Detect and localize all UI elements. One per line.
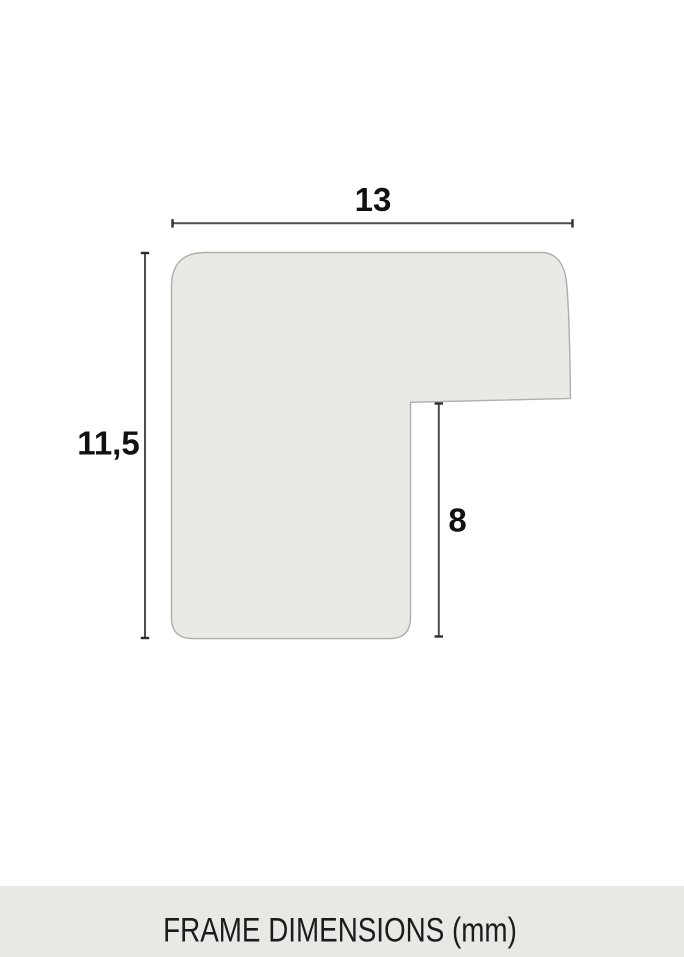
svg-text:8: 8 <box>448 502 466 539</box>
svg-text:FRAME DIMENSIONS (mm): FRAME DIMENSIONS (mm) <box>163 911 517 949</box>
svg-text:11,5: 11,5 <box>77 425 139 462</box>
svg-text:13: 13 <box>355 181 392 218</box>
